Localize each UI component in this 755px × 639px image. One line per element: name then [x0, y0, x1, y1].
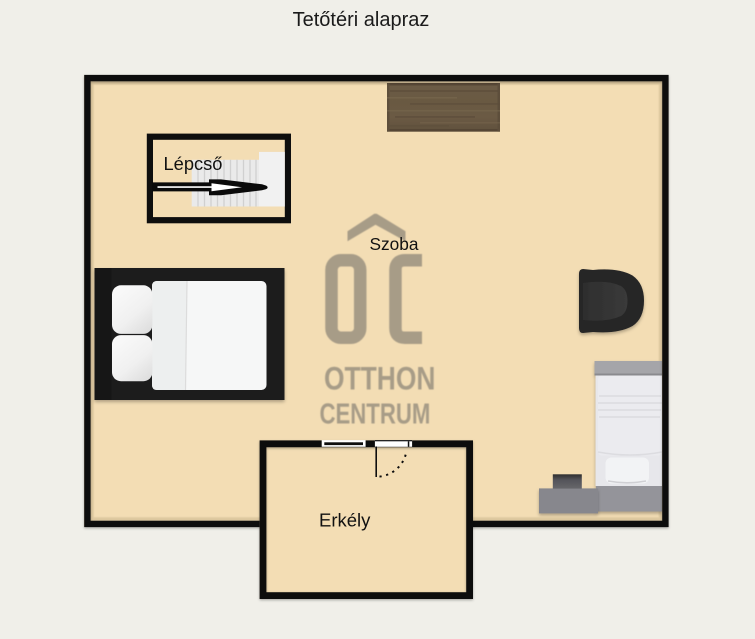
svg-text:Erkély: Erkély — [319, 510, 371, 531]
svg-text:OTTHON: OTTHON — [324, 361, 435, 397]
svg-text:Tetőtéri alapraz: Tetőtéri alapraz — [293, 9, 430, 31]
svg-text:CENTRUM: CENTRUM — [320, 399, 431, 430]
svg-text:Lépcső: Lépcső — [164, 153, 223, 174]
svg-text:Szoba: Szoba — [370, 234, 419, 254]
